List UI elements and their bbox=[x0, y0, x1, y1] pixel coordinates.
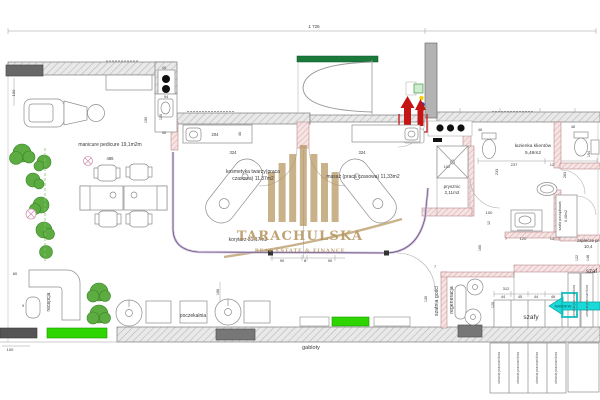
room-label-masaz: masaż (praca czasowa) 11,33m2 bbox=[326, 174, 399, 180]
dim-324-right: 324 bbox=[359, 150, 367, 155]
room-label-regeneracja: regeneracja bbox=[449, 286, 455, 314]
dim-12-lazienka: 12 bbox=[550, 162, 555, 167]
equipment-dot bbox=[162, 75, 170, 83]
dim-204: 204 bbox=[212, 132, 220, 137]
bench bbox=[455, 285, 466, 319]
dim-100-left: 100 bbox=[11, 89, 16, 96]
green-panel-center bbox=[332, 317, 369, 326]
marker-yellow bbox=[419, 96, 423, 100]
dim-90-left: 90 bbox=[280, 258, 285, 263]
wardrobe-label-2: ubrania pracowników bbox=[585, 285, 589, 317]
dim-40-counter: 40 bbox=[237, 131, 242, 136]
dim-190: 190 bbox=[144, 117, 148, 123]
toilet-clients bbox=[482, 133, 496, 159]
dim-312: 312 bbox=[503, 286, 510, 291]
below-wall-wardrobes bbox=[490, 343, 599, 393]
room-label-zaplecze-line1: zaplecze pr bbox=[577, 238, 600, 243]
washbasin bbox=[537, 183, 557, 196]
entry-column bbox=[425, 43, 437, 118]
bottom-wall bbox=[117, 327, 600, 342]
watermark-brand: TARACHULSKA bbox=[237, 229, 364, 244]
dim-44-2: 44 bbox=[534, 295, 538, 299]
room-label-szafa-porzadkowa: szafa porządkowa bbox=[558, 202, 562, 231]
dim-122: 122 bbox=[575, 255, 579, 261]
room-label-recepcja: recepcja bbox=[46, 292, 52, 311]
white-panel bbox=[300, 317, 329, 326]
room-label-prysznic-line1: prysznic bbox=[444, 184, 462, 189]
reception-chair bbox=[26, 297, 40, 318]
dim-7-aneks: 7 bbox=[505, 237, 507, 241]
dim-233: 233 bbox=[495, 169, 499, 175]
room-label-kosmetyka-line2: czasowa) 11,37m2 bbox=[232, 176, 274, 182]
wardrobe-label-1: ubrania pracowników bbox=[572, 285, 576, 317]
dim-100-bottom: 100 bbox=[7, 347, 14, 352]
room-label-poczekalnia: poczekalnia bbox=[180, 313, 207, 319]
room-label-kosmetyka-line1: kosmetyka twarzy(praca bbox=[226, 169, 280, 175]
dim-160: 160 bbox=[478, 245, 482, 251]
corner-sink bbox=[591, 140, 599, 154]
side-table bbox=[146, 301, 171, 323]
dim-120-aneks: 120 bbox=[520, 236, 527, 241]
wardrobe-label-6: ubrania pracowników bbox=[554, 352, 558, 384]
dim-166: 166 bbox=[216, 289, 220, 295]
dim-40-top: 40 bbox=[162, 65, 167, 70]
wall-cabinet bbox=[106, 75, 152, 90]
dim-46: 46 bbox=[551, 295, 555, 299]
dim-102: 102 bbox=[444, 164, 451, 169]
dim-9: 9 bbox=[22, 304, 24, 308]
wardrobe-label-5: ubrania pracowników bbox=[535, 352, 539, 384]
machine-bottom bbox=[465, 309, 481, 325]
dim-120-left: 120 bbox=[159, 114, 163, 120]
dim-7-szatnia: 7 bbox=[434, 265, 436, 269]
dim-40-mid: 40 bbox=[162, 130, 167, 135]
dim-120-szafy: 120 bbox=[491, 302, 495, 308]
dim-263: 263 bbox=[563, 172, 567, 178]
room-label-zaplecze-line2: 10,4 bbox=[584, 244, 593, 249]
dim-48-right-wc: 48 bbox=[571, 125, 575, 129]
window-szatnia bbox=[458, 325, 482, 337]
toilet-staff bbox=[574, 132, 588, 156]
white-panel bbox=[374, 317, 410, 326]
floorplan-image: 1 726manicure pedicure 19,1m2m4861004094… bbox=[0, 0, 600, 400]
watermark-tagline: REAL ESTATE & FINANCE bbox=[255, 248, 346, 254]
dim-324-left: 324 bbox=[230, 150, 238, 155]
dim-45: 45 bbox=[518, 295, 522, 299]
dim-130: 130 bbox=[424, 296, 428, 302]
dim-12-aneks: 12 bbox=[550, 236, 555, 241]
dim-148: 148 bbox=[586, 255, 590, 261]
dim-total-width: 1 726 bbox=[308, 24, 320, 29]
dim-154: 154 bbox=[587, 151, 591, 157]
entry-lintel bbox=[297, 56, 378, 62]
window-bottom bbox=[216, 329, 255, 340]
equipment-dot bbox=[162, 85, 170, 93]
side-table bbox=[180, 301, 207, 323]
wardrobe-label-4: ubrania pracowników bbox=[516, 352, 520, 384]
dim-237: 237 bbox=[511, 162, 518, 167]
dim-12-small: 12 bbox=[487, 221, 491, 225]
dim-94: 94 bbox=[164, 95, 168, 99]
room-label-lazienka-line2: 5,46m2 bbox=[525, 150, 541, 156]
room-label-prysznic-line2: 2,11m2 bbox=[445, 190, 460, 195]
room-label-szafy-right: szaf bbox=[586, 269, 597, 275]
side-table bbox=[244, 301, 270, 323]
wardrobe-label-3: ubrania pracowników bbox=[497, 352, 501, 384]
machine-top bbox=[467, 279, 483, 295]
dim-48-left-wc: 48 bbox=[478, 128, 482, 132]
dark-panel-left bbox=[0, 328, 37, 338]
dim-80: 80 bbox=[13, 271, 18, 276]
nawiew-label: NAWIEW bbox=[555, 304, 572, 309]
shower-tray bbox=[437, 146, 468, 178]
utility-counter bbox=[511, 210, 542, 231]
room-label-szafa-porzadkowa-area: 0,48m2 bbox=[564, 210, 568, 222]
meter-green bbox=[414, 84, 423, 93]
room-label-szafy: szafy bbox=[523, 314, 539, 321]
dim-100-lazienka: 100 bbox=[486, 210, 493, 215]
dim-44-1: 44 bbox=[501, 295, 505, 299]
window-top-left bbox=[6, 65, 43, 76]
room-label-gabloty: gabloty bbox=[302, 345, 320, 351]
room-label-szatnia: szatnia gości bbox=[434, 286, 440, 316]
dim-90-right: 90 bbox=[328, 258, 333, 263]
floorplan-svg: 1 726manicure pedicure 19,1m2m4861004094… bbox=[0, 0, 600, 400]
room-label-lazienka-line1: łazienka klientów bbox=[515, 143, 552, 149]
room-label-manicure: manicure pedicure 19,1m2m bbox=[78, 142, 141, 148]
dim-486: 486 bbox=[107, 156, 115, 161]
green-panel-left bbox=[47, 328, 107, 338]
